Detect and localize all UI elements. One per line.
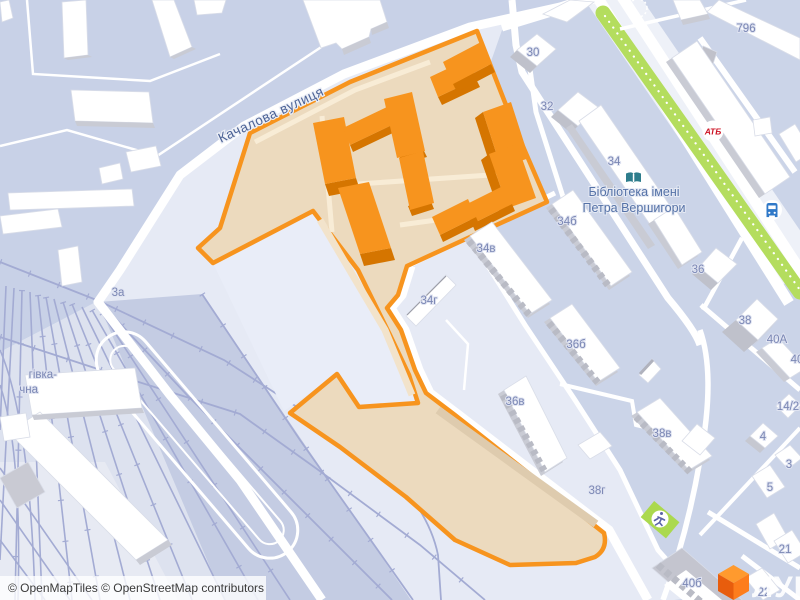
svg-text:36в: 36в [506,396,525,408]
svg-text:чна: чна [19,384,38,396]
svg-text:38в: 38в [653,428,672,440]
svg-text:30: 30 [527,47,540,59]
svg-text:40А: 40А [767,334,788,346]
svg-text:40: 40 [791,354,800,366]
svg-text:гівка-: гівка- [29,369,58,381]
svg-text:32: 32 [541,101,554,113]
svg-text:3а: 3а [112,287,125,299]
svg-text:АТБ: АТБ [704,127,722,137]
svg-text:38: 38 [739,315,752,327]
svg-text:ЛУН: ЛУН [752,571,800,600]
svg-text:796: 796 [736,23,755,35]
svg-text:21: 21 [779,544,792,556]
svg-text:38г: 38г [589,485,606,497]
svg-text:36б: 36б [566,339,586,351]
svg-text:© OpenMapTiles © OpenStreetMap: © OpenMapTiles © OpenStreetMap contribut… [8,581,264,595]
svg-text:Петра Вершигори: Петра Вершигори [582,201,685,215]
svg-text:34г: 34г [421,295,438,307]
svg-text:36: 36 [692,264,705,276]
svg-text:34б: 34б [557,216,577,228]
svg-text:40б: 40б [682,578,702,590]
svg-text:4: 4 [760,431,767,443]
svg-text:34в: 34в [477,243,496,255]
svg-text:14/2: 14/2 [777,401,799,413]
svg-text:34: 34 [608,156,621,168]
svg-text:5: 5 [767,482,773,494]
svg-text:Бібліотека імені: Бібліотека імені [588,185,679,199]
svg-text:3: 3 [786,459,792,471]
